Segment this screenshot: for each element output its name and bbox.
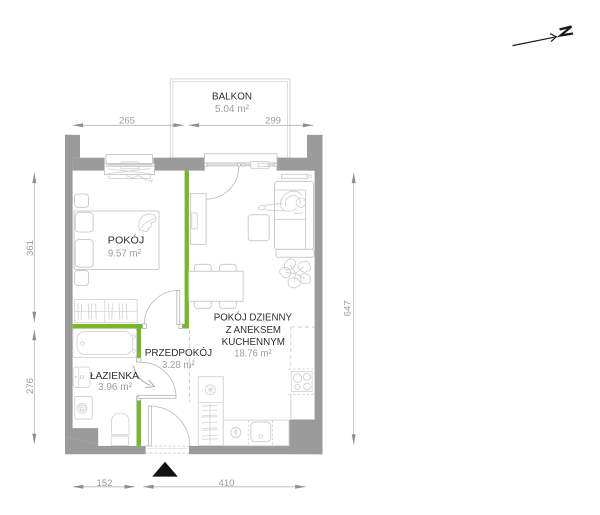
svg-text:PRZEDPOKÓJ: PRZEDPOKÓJ <box>145 346 212 359</box>
svg-text:647: 647 <box>343 300 354 316</box>
svg-text:410: 410 <box>218 478 234 489</box>
svg-text:9.57 m²: 9.57 m² <box>108 248 142 259</box>
svg-text:361: 361 <box>25 240 36 256</box>
svg-text:276: 276 <box>25 378 36 394</box>
svg-text:BALKON: BALKON <box>212 92 252 103</box>
svg-text:18.76 m²: 18.76 m² <box>234 349 272 360</box>
svg-text:5.04 m²: 5.04 m² <box>215 104 250 115</box>
svg-text:3.28 m²: 3.28 m² <box>162 360 195 371</box>
svg-text:Z ANEKSEM: Z ANEKSEM <box>226 325 281 336</box>
svg-text:265: 265 <box>119 115 135 126</box>
svg-text:299: 299 <box>265 115 281 126</box>
svg-text:3.96 m²: 3.96 m² <box>98 382 133 393</box>
svg-text:ŁAZIENKA: ŁAZIENKA <box>90 371 139 382</box>
svg-text:POKÓJ: POKÓJ <box>108 234 144 247</box>
svg-text:152: 152 <box>96 478 112 489</box>
svg-text:POKÓJ DZIENNY: POKÓJ DZIENNY <box>214 310 292 323</box>
svg-text:KUCHENNYM: KUCHENNYM <box>222 337 285 348</box>
